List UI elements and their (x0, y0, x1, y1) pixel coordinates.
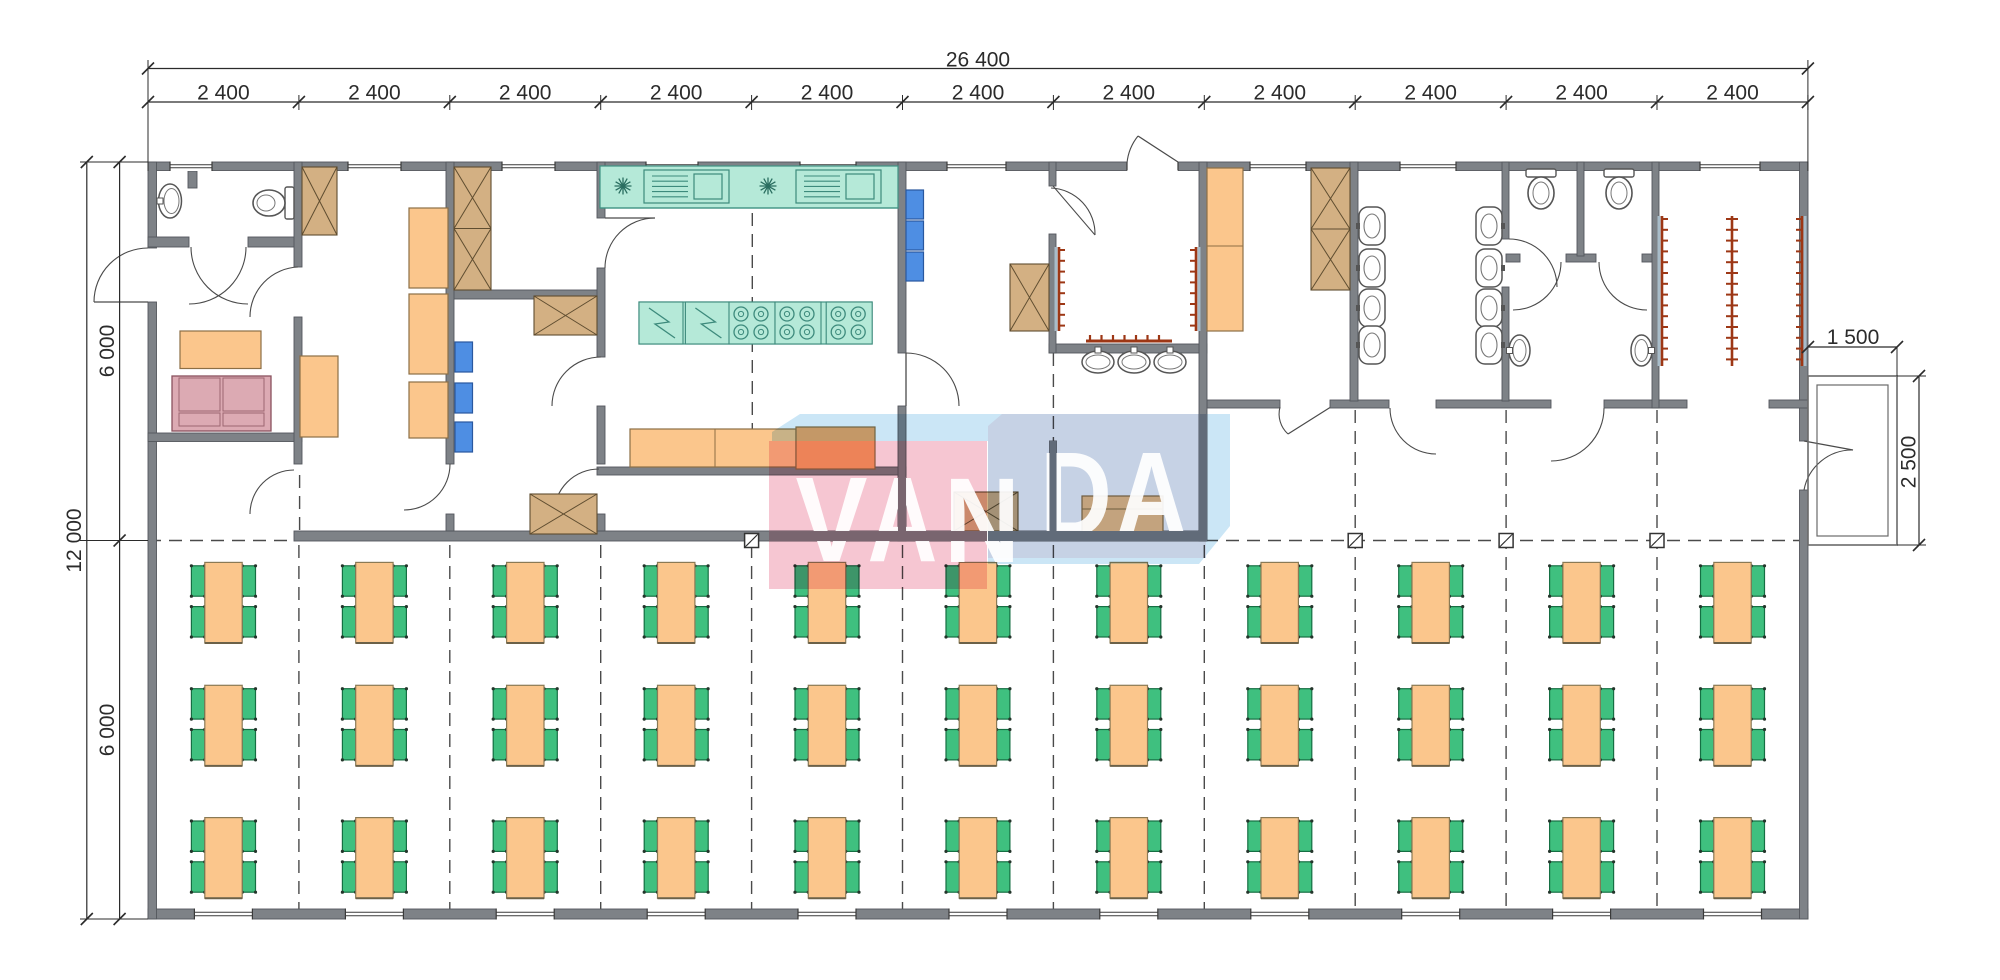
svg-text:2 400: 2 400 (1706, 82, 1759, 105)
svg-text:N: N (944, 452, 1020, 588)
svg-text:6 000: 6 000 (96, 704, 119, 757)
svg-text:2 500: 2 500 (1898, 436, 1921, 489)
svg-text:2 400: 2 400 (499, 82, 552, 105)
svg-text:1 500: 1 500 (1827, 326, 1880, 349)
svg-text:26 400: 26 400 (946, 49, 1010, 72)
svg-text:V: V (796, 451, 868, 587)
svg-text:2 400: 2 400 (650, 82, 703, 105)
svg-text:2 400: 2 400 (801, 82, 854, 105)
svg-text:2 400: 2 400 (1103, 82, 1156, 105)
svg-text:6 000: 6 000 (96, 325, 119, 378)
svg-text:A: A (1116, 426, 1188, 562)
svg-text:2 400: 2 400 (1404, 82, 1457, 105)
svg-text:2 400: 2 400 (348, 82, 401, 105)
svg-text:2 400: 2 400 (197, 82, 250, 105)
svg-text:2 400: 2 400 (1555, 82, 1608, 105)
svg-text:2 400: 2 400 (952, 82, 1005, 105)
svg-text:2 400: 2 400 (1254, 82, 1307, 105)
